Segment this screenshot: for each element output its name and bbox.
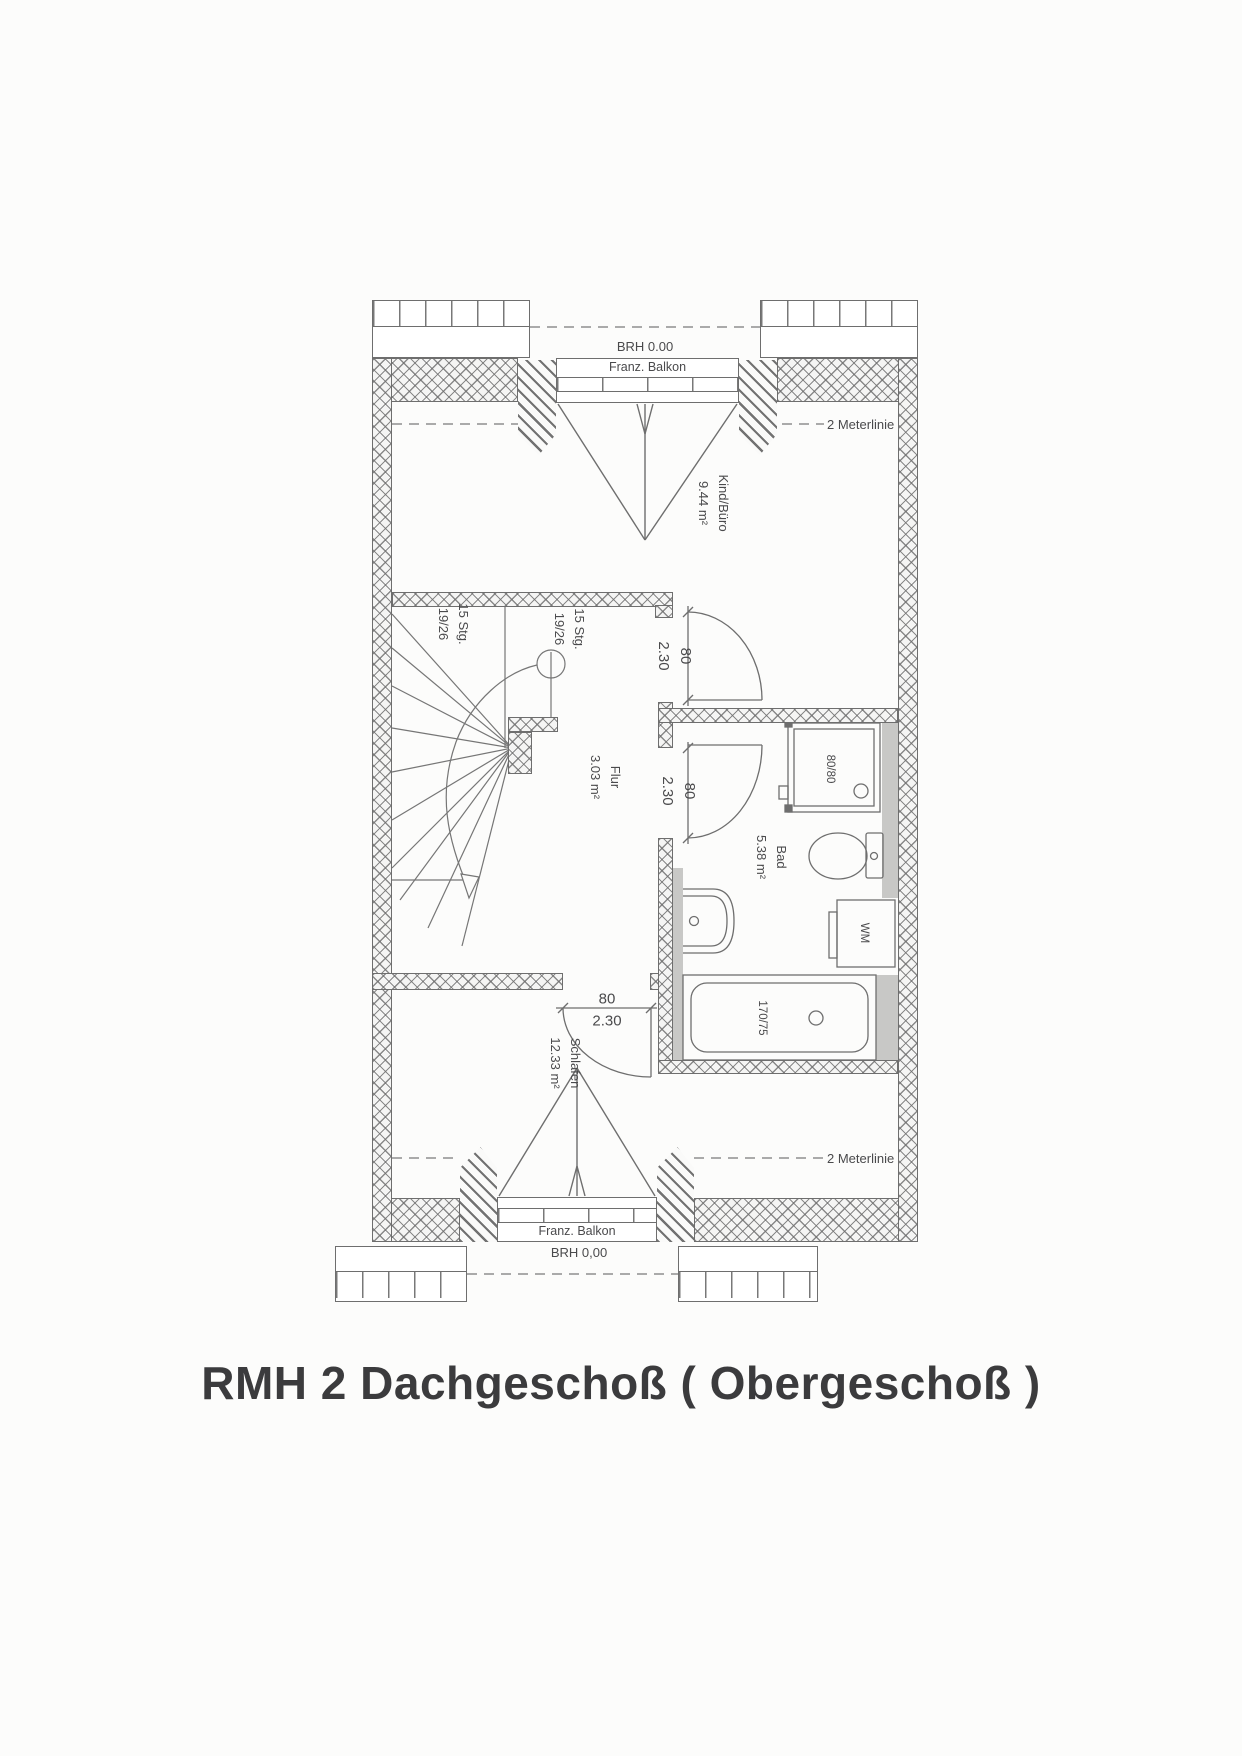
french-balcony-bottom-label: Franz. Balkon xyxy=(498,1223,656,1241)
wall-bad-south xyxy=(658,1060,898,1074)
wall-stair-l-vertical xyxy=(508,732,532,774)
wall-post-door-schlafen xyxy=(650,973,659,990)
page-title: RMH 2 Dachgeschoß ( Obergeschoß ) xyxy=(0,1356,1242,1410)
brh-bottom-label: BRH 0,00 xyxy=(551,1245,607,1261)
door-kind-dimension: 802.30 xyxy=(652,641,696,670)
dashed-lines xyxy=(392,327,824,1274)
washbasin xyxy=(683,889,734,953)
wall-bad-west xyxy=(658,838,673,1062)
balcony-railing-bottom-left xyxy=(335,1246,467,1302)
stair-label-left: 15 Stg.19/26 xyxy=(433,603,473,644)
balcony-railing-top-left xyxy=(372,300,530,358)
meterline-bottom-label: 2 Meterlinie xyxy=(827,1151,894,1167)
wall-top-left xyxy=(372,358,518,402)
plan-linework xyxy=(0,0,1242,1756)
wall-right xyxy=(898,358,918,1242)
toilet xyxy=(809,833,883,879)
door-schlafen-dimension: 80 2.30 xyxy=(592,988,621,1032)
stair-walkline-arrow xyxy=(461,874,479,898)
brh-top-label: BRH 0.00 xyxy=(617,339,673,355)
bathtub-size-label: 170/75 xyxy=(752,1000,770,1035)
stair-label-right: 15 Stg.19/26 xyxy=(549,608,589,649)
scanned-floor-plan-page: Franz. Balkon Franz. Balkon BRH 0.00 BRH… xyxy=(0,0,1242,1756)
shower-size-label: 80/80 xyxy=(820,755,838,784)
wall-top-right xyxy=(777,358,918,402)
room-label-kind: Kind/Büro9.44 m² xyxy=(693,474,733,531)
french-balcony-top-label: Franz. Balkon xyxy=(557,359,738,378)
wall-bottom-right xyxy=(694,1198,918,1242)
french-balcony-top: Franz. Balkon xyxy=(556,358,739,403)
bathtub xyxy=(683,975,876,1060)
room-label-bad: Bad5.38 m² xyxy=(751,835,791,879)
wall-left xyxy=(372,358,392,1242)
balcony-railing-bottom-right xyxy=(678,1246,818,1302)
french-balcony-bottom: Franz. Balkon xyxy=(497,1197,657,1242)
door-bad-dimension: 802.30 xyxy=(656,776,700,805)
balcony-railing-top-right xyxy=(760,300,918,358)
bath-ducts xyxy=(672,723,898,1060)
room-label-schlafen: Schlafen12.33 m² xyxy=(545,1037,585,1088)
wall-schlafen-north xyxy=(372,973,563,990)
stair-walkline xyxy=(446,665,537,892)
wall-post-door-kind xyxy=(655,605,673,618)
meterline-top-label: 2 Meterlinie xyxy=(827,417,894,433)
washing-machine-label: WM xyxy=(854,923,872,943)
stairs xyxy=(392,607,565,946)
wall-stair-l-horizontal xyxy=(508,717,558,732)
room-label-flur: Flur3.03 m² xyxy=(585,755,625,799)
wall-bad-north xyxy=(658,708,898,723)
